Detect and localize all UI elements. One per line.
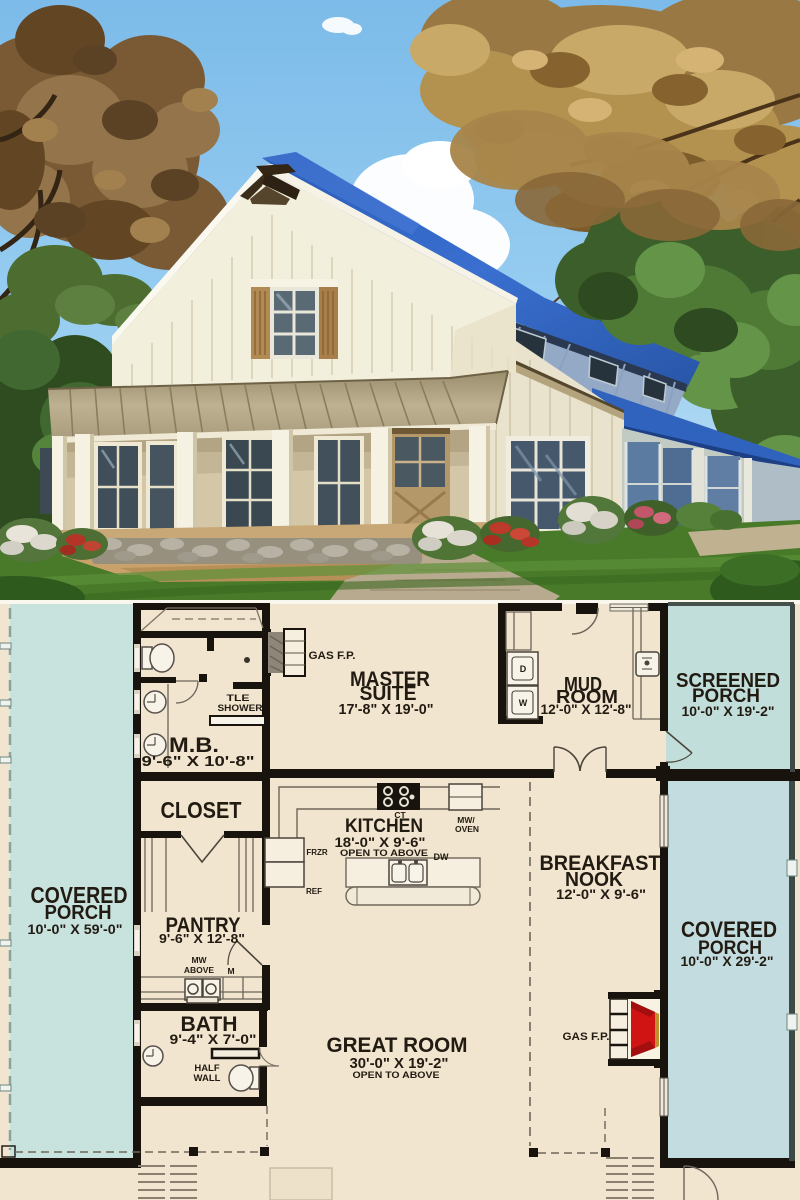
svg-text:OPEN TO ABOVE: OPEN TO ABOVE — [353, 1070, 440, 1080]
svg-text:9'-6" X 10'-8": 9'-6" X 10'-8" — [142, 754, 255, 770]
svg-text:SHOWER: SHOWER — [218, 703, 264, 713]
svg-text:GREAT ROOM: GREAT ROOM — [327, 1034, 468, 1057]
svg-text:10'-0" X 29'-2": 10'-0" X 29'-2" — [681, 954, 774, 969]
svg-text:10'-0" X 59'-0": 10'-0" X 59'-0" — [28, 922, 123, 937]
svg-text:CLOSET: CLOSET — [161, 797, 242, 823]
svg-text:ABOVE: ABOVE — [184, 965, 215, 975]
svg-text:17'-8" X 19'-0": 17'-8" X 19'-0" — [339, 702, 434, 718]
svg-text:9'-4" X 7'-0": 9'-4" X 7'-0" — [170, 1031, 257, 1047]
svg-text:OPEN TO ABOVE: OPEN TO ABOVE — [340, 848, 428, 859]
svg-text:12'-0" X 9'-6": 12'-0" X 9'-6" — [556, 886, 646, 902]
svg-text:TLE: TLE — [227, 693, 250, 703]
svg-text:CT: CT — [394, 810, 406, 820]
svg-text:GAS F.P.: GAS F.P. — [563, 1031, 610, 1043]
svg-text:FRZR: FRZR — [306, 848, 328, 857]
svg-text:M: M — [227, 966, 234, 976]
svg-text:PORCH: PORCH — [45, 902, 112, 924]
svg-text:DW: DW — [434, 852, 449, 862]
svg-text:MW: MW — [191, 955, 207, 965]
svg-text:W: W — [519, 698, 528, 708]
svg-text:OVEN: OVEN — [455, 824, 479, 834]
svg-text:REF: REF — [306, 887, 322, 896]
svg-text:12'-0" X 12'-8": 12'-0" X 12'-8" — [541, 701, 632, 717]
svg-text:D: D — [520, 664, 527, 674]
svg-text:10'-0" X 19'-2": 10'-0" X 19'-2" — [682, 704, 775, 719]
svg-text:GAS F.P.: GAS F.P. — [309, 650, 356, 662]
svg-text:9'-6" X 12'-8": 9'-6" X 12'-8" — [159, 931, 245, 946]
svg-text:WALL: WALL — [194, 1073, 221, 1084]
